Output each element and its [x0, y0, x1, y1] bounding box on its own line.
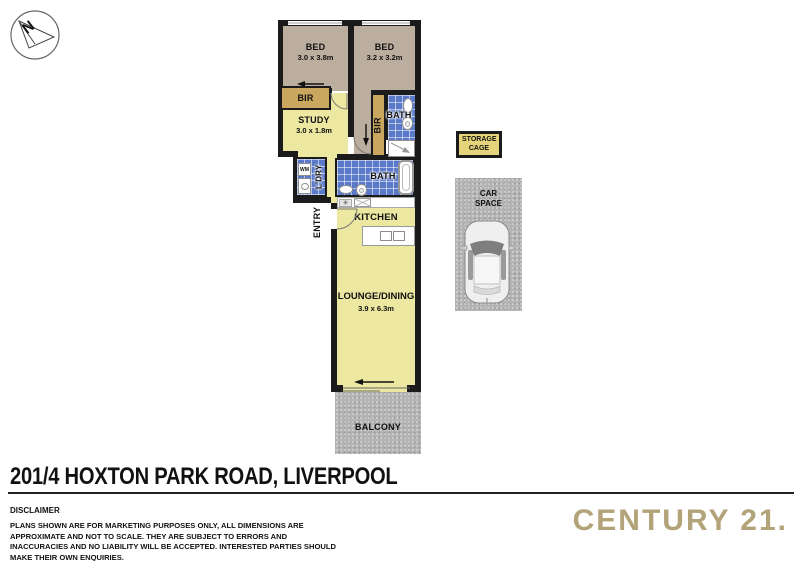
bath2-toilet	[356, 184, 367, 196]
bath2-label: BATH	[363, 171, 403, 182]
laundry-tub-basin	[301, 183, 309, 190]
wall-study-hall	[348, 93, 354, 137]
storage-cage-label: STORAGE CAGE	[462, 136, 496, 152]
wall-slider-post-left	[331, 385, 343, 392]
bath1-shower	[388, 140, 415, 157]
bedroom2-label-group: BED 3.2 x 3.2m	[354, 42, 415, 62]
built-in-robe-1: BIR	[280, 86, 331, 110]
island-sink-left	[380, 231, 392, 241]
laundry-washing-machine: WM	[298, 163, 311, 176]
bedroom1-label: BED	[283, 42, 348, 53]
wall-right	[415, 20, 421, 392]
balcony-label: BALCONY	[335, 422, 421, 433]
bedroom1-window	[288, 21, 342, 25]
property-address: 201/4 HOXTON PARK ROAD, LIVERPOOL	[10, 463, 398, 491]
laundry-tub	[298, 178, 311, 194]
bath2-basin	[339, 185, 353, 194]
disclaimer-heading: DISCLAIMER	[10, 506, 60, 515]
entry-label-wrap: ENTRY	[305, 205, 331, 239]
bir2-label-wrap: BIR	[371, 93, 386, 157]
lounge-dims: 3.9 x 6.3m	[337, 304, 415, 313]
wall-slider-post-right	[407, 385, 421, 392]
study-label-group: STUDY 3.0 x 1.8m	[283, 115, 345, 135]
bedroom2-label: BED	[354, 42, 415, 53]
bedroom2-dims: 3.2 x 3.2m	[354, 53, 415, 62]
bedroom2-window	[362, 21, 410, 25]
compass-north-icon: N	[4, 4, 68, 68]
kitchen-label: KITCHEN	[337, 212, 415, 223]
address-divider	[8, 492, 794, 494]
study-dims: 3.0 x 1.8m	[283, 126, 345, 135]
disclaimer-body: PLANS SHOWN ARE FOR MARKETING PURPOSES O…	[10, 521, 346, 561]
floorplan-page: N BIR BIR BATH BATH WM	[0, 0, 800, 561]
study-label: STUDY	[283, 115, 345, 126]
island-sink-right	[393, 231, 405, 241]
bedroom1-label-group: BED 3.0 x 3.8m	[283, 42, 348, 62]
compass-north-label: N	[19, 18, 38, 38]
hallway-floor	[354, 93, 371, 157]
laundry-label: L'DRY	[314, 165, 324, 189]
wall-under-laundry	[293, 197, 331, 203]
century21-logo: CENTURY 21.	[573, 504, 788, 538]
bath1-label: BATH	[386, 110, 412, 121]
car-space-label: CAR SPACE	[466, 189, 511, 210]
bedroom1-dims: 3.0 x 3.8m	[283, 53, 348, 62]
entry-label: ENTRY	[313, 206, 324, 237]
storage-cage: STORAGE CAGE	[456, 131, 502, 158]
cooktop-fan-icon: ✳	[339, 199, 352, 207]
lounge-label: LOUNGE/DINING	[337, 291, 415, 302]
bir2-label: BIR	[373, 117, 384, 133]
lounge-label-group: LOUNGE/DINING 3.9 x 6.3m	[337, 291, 415, 313]
bir1-label: BIR	[282, 93, 329, 104]
stove-burners	[354, 198, 371, 207]
laundry-label-wrap: L'DRY	[311, 157, 327, 197]
wm-label: WM	[299, 167, 310, 173]
